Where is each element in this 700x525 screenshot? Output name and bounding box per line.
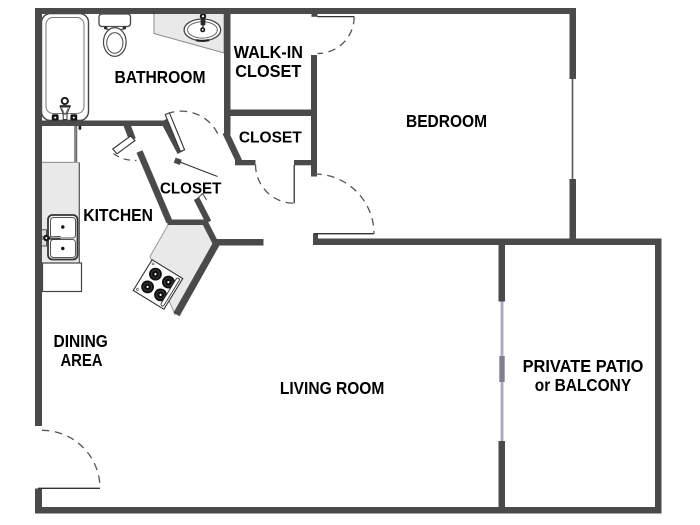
- svg-text:BEDROOM: BEDROOM: [406, 111, 487, 131]
- svg-text:CLOSET: CLOSET: [160, 180, 222, 197]
- svg-text:WALK-IN: WALK-IN: [234, 42, 303, 62]
- svg-text:PRIVATE PATIO: PRIVATE PATIO: [523, 356, 644, 376]
- svg-text:KITCHEN: KITCHEN: [83, 205, 153, 225]
- svg-text:DINING: DINING: [54, 331, 108, 351]
- svg-text:CLOSET: CLOSET: [235, 61, 301, 81]
- svg-text:BATHROOM: BATHROOM: [115, 67, 206, 87]
- svg-text:LIVING ROOM: LIVING ROOM: [280, 378, 385, 398]
- svg-text:AREA: AREA: [60, 350, 102, 370]
- svg-text:or BALCONY: or BALCONY: [535, 375, 632, 395]
- svg-text:CLOSET: CLOSET: [239, 129, 302, 146]
